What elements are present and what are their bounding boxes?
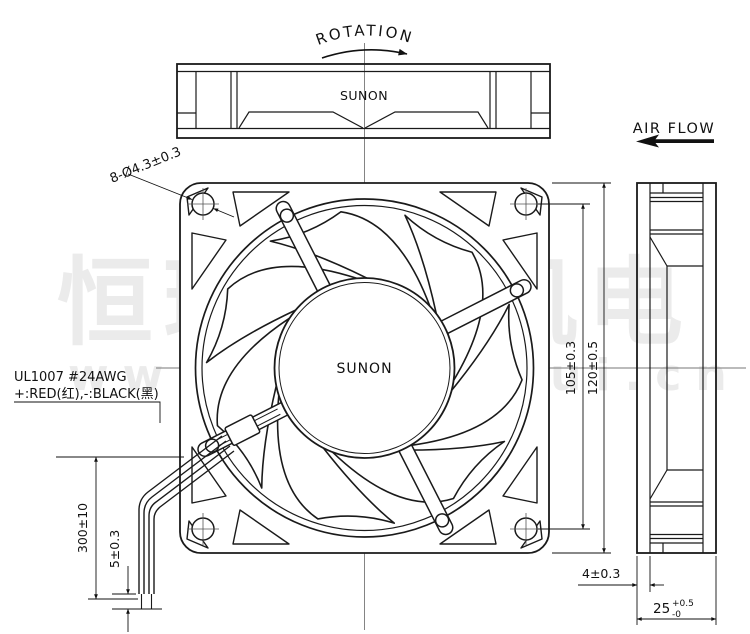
fan-technical-drawing: 恒瑞宏晟机电 www.bjhengrui.cn ROTATION bbox=[0, 0, 750, 634]
top-view: SUNON bbox=[177, 64, 550, 138]
hole-callout-label: 8-Ø4.3±0.3 bbox=[108, 145, 184, 187]
dim-strip-length: 5±0.3 bbox=[107, 530, 122, 568]
wire-spec-line1: UL1007 #24AWG bbox=[14, 370, 127, 385]
front-view: SUNON bbox=[180, 181, 551, 553]
dim-flange-thickness: 4±0.3 bbox=[582, 566, 620, 581]
wire-spec-line2: +:RED(红),-:BLACK(黑) bbox=[14, 386, 159, 402]
dim-depth-tol-upper: +0.5 bbox=[672, 599, 694, 609]
brand-label-top-view: SUNON bbox=[340, 88, 388, 103]
air-flow-label: AIR FLOW bbox=[633, 121, 716, 137]
dim-depth-nominal: 25 bbox=[653, 601, 670, 617]
dim-lead-length: 300±10 bbox=[75, 503, 90, 553]
wire-spec-leader bbox=[14, 402, 160, 423]
drawing-canvas: 恒瑞宏晟机电 www.bjhengrui.cn ROTATION bbox=[0, 0, 750, 634]
brand-label-hub: SUNON bbox=[336, 361, 392, 377]
dim-depth: 25 +0.5 -0 bbox=[653, 599, 694, 620]
dim-hole-pitch: 105±0.3 bbox=[563, 341, 578, 395]
dim-depth-tol-lower: -0 bbox=[672, 610, 681, 620]
dim-frame-size: 120±0.5 bbox=[585, 341, 600, 395]
